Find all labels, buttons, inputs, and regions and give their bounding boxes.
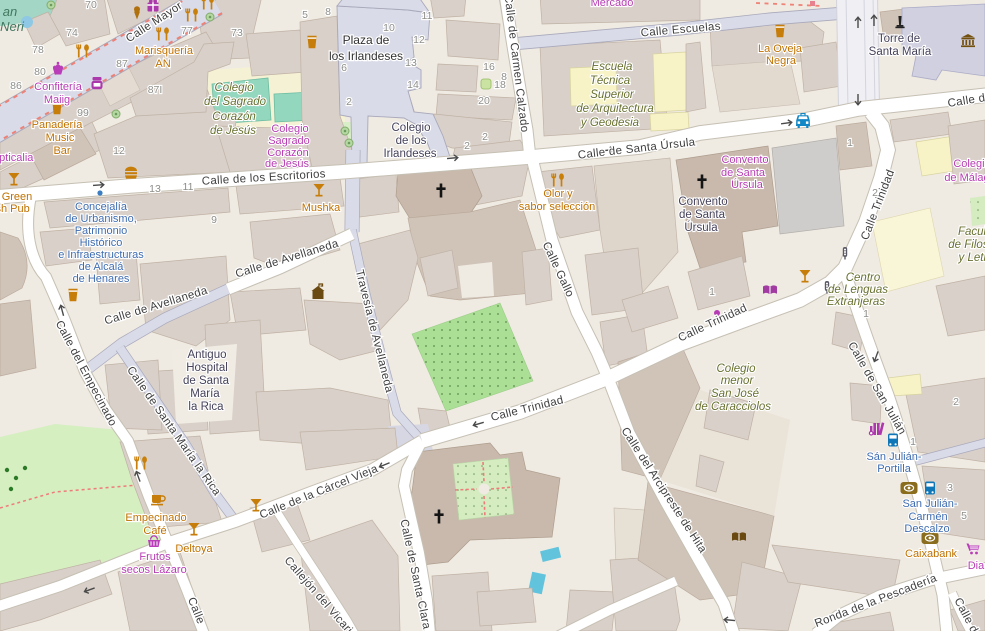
svg-text:Hospital: Hospital bbox=[186, 362, 228, 374]
svg-text:de Caracciolos: de Caracciolos bbox=[695, 401, 771, 413]
svg-text:Colegio: Colegio bbox=[215, 82, 255, 94]
svg-text:San José: San José bbox=[711, 388, 759, 400]
svg-text:5: 5 bbox=[961, 510, 967, 522]
svg-text:Colegio: Colegio bbox=[953, 158, 985, 170]
svg-text:Bar: Bar bbox=[53, 145, 70, 157]
svg-text:6: 6 bbox=[341, 62, 347, 74]
svg-text:9: 9 bbox=[211, 214, 217, 226]
svg-text:Plaza de: Plaza de bbox=[343, 33, 390, 47]
svg-text:Convento: Convento bbox=[678, 196, 727, 208]
svg-text:Sagrado: Sagrado bbox=[268, 135, 310, 147]
svg-text:78: 78 bbox=[32, 44, 44, 56]
svg-text:de Filosofía: de Filosofía bbox=[948, 239, 985, 251]
svg-text:20: 20 bbox=[478, 95, 490, 107]
svg-text:Convento: Convento bbox=[721, 154, 768, 166]
svg-text:Facultad: Facultad bbox=[958, 226, 985, 238]
svg-text:Neri: Neri bbox=[0, 19, 25, 34]
svg-text:Mercado: Mercado bbox=[591, 0, 634, 9]
svg-text:80: 80 bbox=[34, 66, 46, 78]
svg-text:AN: AN bbox=[155, 58, 170, 70]
svg-text:Corazón: Corazón bbox=[212, 111, 255, 123]
svg-text:12: 12 bbox=[413, 34, 425, 46]
svg-text:de Málaga: de Málaga bbox=[944, 172, 985, 184]
svg-text:Patrimonio: Patrimonio bbox=[75, 225, 128, 237]
svg-text:secos Lázaro: secos Lázaro bbox=[121, 564, 186, 576]
svg-text:de Jesús: de Jesús bbox=[265, 158, 310, 170]
svg-text:del Sagrado: del Sagrado bbox=[204, 96, 267, 108]
svg-text:Café: Café bbox=[143, 525, 166, 537]
svg-text:Extranjeras: Extranjeras bbox=[827, 296, 885, 308]
svg-text:1: 1 bbox=[863, 308, 869, 320]
svg-text:87I: 87I bbox=[148, 84, 163, 96]
svg-text:de los: de los bbox=[396, 135, 427, 147]
svg-text:13: 13 bbox=[405, 57, 417, 69]
svg-text:Caixabank: Caixabank bbox=[905, 548, 957, 560]
svg-text:Concejalía: Concejalía bbox=[75, 201, 128, 213]
svg-text:3: 3 bbox=[947, 482, 953, 494]
svg-text:The Green: The Green bbox=[0, 191, 32, 203]
svg-text:Maiig: Maiig bbox=[44, 94, 70, 106]
svg-text:de Urbanismo,: de Urbanismo, bbox=[65, 213, 137, 225]
svg-text:1: 1 bbox=[910, 436, 916, 448]
svg-text:2: 2 bbox=[346, 96, 352, 108]
svg-text:Empecinado: Empecinado bbox=[125, 512, 186, 524]
svg-text:Técnica: Técnica bbox=[590, 75, 630, 87]
svg-text:74: 74 bbox=[66, 27, 78, 39]
svg-text:2: 2 bbox=[464, 140, 470, 152]
svg-text:y Letras: y Letras bbox=[958, 252, 985, 264]
svg-text:Superior: Superior bbox=[590, 89, 635, 101]
svg-text:Santa María: Santa María bbox=[869, 46, 932, 58]
svg-text:12: 12 bbox=[113, 145, 125, 157]
svg-text:de Alcalá: de Alcalá bbox=[79, 261, 125, 273]
svg-text:13: 13 bbox=[149, 183, 161, 195]
svg-text:Torre de: Torre de bbox=[878, 33, 920, 45]
svg-text:11: 11 bbox=[183, 181, 194, 193]
svg-text:Carmén: Carmén bbox=[908, 511, 947, 523]
svg-text:Colegio: Colegio bbox=[392, 122, 431, 134]
svg-text:San Julián-: San Julián- bbox=[902, 498, 957, 510]
svg-text:Panadería: Panadería bbox=[32, 119, 84, 131]
svg-text:menor: menor bbox=[721, 375, 755, 387]
svg-text:Centro: Centro bbox=[846, 272, 881, 284]
svg-text:1: 1 bbox=[709, 286, 715, 298]
svg-text:Portilla: Portilla bbox=[877, 463, 912, 475]
svg-text:73: 73 bbox=[231, 27, 243, 39]
svg-text:de Arquitectura: de Arquitectura bbox=[576, 103, 654, 115]
svg-text:sabor selección: sabor selección bbox=[519, 201, 595, 213]
svg-text:Frutos: Frutos bbox=[139, 551, 171, 563]
svg-text:70: 70 bbox=[85, 0, 97, 11]
svg-text:de Santa: de Santa bbox=[679, 209, 726, 221]
svg-text:16: 16 bbox=[483, 61, 495, 73]
svg-text:Descalzo: Descalzo bbox=[904, 523, 949, 535]
svg-text:Dia: Dia bbox=[968, 560, 985, 572]
svg-text:los Irlandeses: los Irlandeses bbox=[329, 49, 403, 63]
svg-text:Colegio: Colegio bbox=[271, 123, 308, 135]
svg-text:18: 18 bbox=[494, 79, 506, 91]
svg-text:Histórico: Histórico bbox=[80, 237, 123, 249]
svg-text:1: 1 bbox=[847, 137, 853, 149]
svg-text:Mushka: Mushka bbox=[302, 202, 341, 214]
svg-text:la Rica: la Rica bbox=[188, 401, 224, 413]
svg-text:Irish Pub: Irish Pub bbox=[0, 203, 30, 215]
svg-text:Irlandeses: Irlandeses bbox=[383, 148, 436, 160]
svg-text:2: 2 bbox=[482, 131, 488, 143]
svg-text:8: 8 bbox=[325, 6, 331, 18]
svg-text:86: 86 bbox=[10, 80, 22, 92]
svg-text:Confitería: Confitería bbox=[34, 81, 83, 93]
svg-text:87: 87 bbox=[116, 58, 128, 70]
svg-text:2: 2 bbox=[872, 187, 878, 199]
svg-text:María: María bbox=[190, 388, 220, 400]
svg-text:Marisquería: Marisquería bbox=[135, 45, 194, 57]
svg-text:e Infraestructuras: e Infraestructuras bbox=[58, 249, 144, 261]
svg-text:77: 77 bbox=[181, 25, 193, 37]
svg-text:Úrsula: Úrsula bbox=[731, 178, 764, 191]
svg-text:10: 10 bbox=[383, 22, 395, 34]
svg-text:Sán Julián-: Sán Julián- bbox=[866, 451, 921, 463]
svg-text:Úrsula: Úrsula bbox=[684, 221, 718, 234]
svg-text:11: 11 bbox=[422, 10, 433, 22]
svg-text:99: 99 bbox=[77, 107, 89, 119]
svg-text:an: an bbox=[3, 4, 17, 19]
svg-text:5: 5 bbox=[302, 9, 308, 21]
svg-text:de Henares: de Henares bbox=[73, 273, 130, 285]
svg-text:de Santa: de Santa bbox=[183, 375, 230, 387]
svg-text:de Jesús: de Jesús bbox=[210, 125, 256, 137]
svg-text:Antiguo: Antiguo bbox=[187, 349, 226, 361]
svg-text:y Geodesia: y Geodesia bbox=[580, 117, 639, 129]
svg-text:Deltoya: Deltoya bbox=[175, 543, 213, 555]
svg-text:Escuela: Escuela bbox=[592, 61, 633, 73]
svg-text:Negra: Negra bbox=[766, 55, 797, 67]
svg-text:Music: Music bbox=[46, 132, 75, 144]
svg-text:14: 14 bbox=[407, 79, 419, 91]
svg-text:de Lenguas: de Lenguas bbox=[828, 284, 888, 296]
svg-text:Opticalia: Opticalia bbox=[0, 152, 34, 164]
svg-text:La Oveja: La Oveja bbox=[758, 43, 803, 55]
svg-text:2: 2 bbox=[953, 396, 959, 408]
svg-text:de Santa: de Santa bbox=[721, 167, 766, 179]
svg-text:Colegio: Colegio bbox=[717, 363, 757, 375]
svg-text:Olor y: Olor y bbox=[543, 188, 573, 200]
